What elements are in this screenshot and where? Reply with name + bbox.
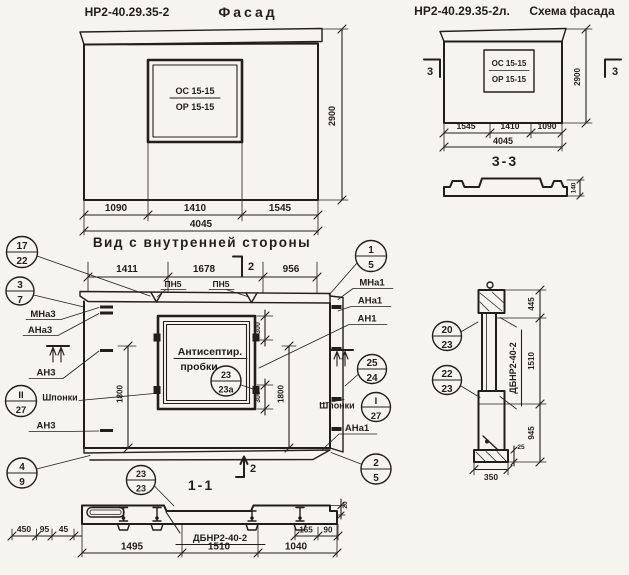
label-shponki-left: Шпонки: [42, 393, 77, 403]
callout-20-23: 20 23: [433, 322, 479, 352]
callout-II-27: II 27: [6, 386, 155, 417]
pn5-label-right: ПН5: [213, 279, 230, 289]
dim-25: 25: [517, 444, 525, 451]
d25-line: [511, 446, 517, 466]
inner-top-flange: [80, 292, 330, 304]
callout-top: 3: [17, 280, 23, 291]
dim-1040: 1040: [285, 542, 308, 553]
pn5-label-left: ПН5: [165, 279, 182, 289]
section2-mark-top-label: 2: [248, 261, 254, 273]
label-ana1-b: АНа1: [345, 423, 370, 434]
facade-window-frame: [148, 60, 242, 142]
schema-window-mark-top: ОС 15-15: [492, 59, 527, 68]
inner-dim-956: 956: [283, 264, 300, 275]
callout-bottom: 5: [368, 260, 374, 271]
right-key: [332, 305, 342, 309]
callout-top: 17: [16, 241, 28, 252]
dim-20: 20: [342, 501, 349, 509]
dim-450: 450: [17, 524, 31, 534]
callout-leader: [34, 295, 85, 307]
callout-bottom: 27: [371, 411, 382, 422]
callout-22-23: 22 23: [433, 366, 481, 398]
schema-height-dim: 2900: [573, 68, 582, 86]
callout-top: II: [18, 390, 23, 401]
section-11-label: 1-1: [188, 477, 214, 493]
left-key: [100, 429, 113, 432]
ana1-leader: [338, 307, 391, 312]
dim-300-bottom: 300: [255, 391, 262, 403]
left-key: [100, 312, 113, 315]
anchor-dot: [250, 516, 254, 520]
schema-title-word: Схема фасада: [529, 4, 615, 18]
section2-mark-bottom-label: 2: [250, 463, 256, 475]
label-ana3: АНа3: [28, 325, 52, 336]
window-tab: [154, 334, 161, 342]
schema-dim-1090: 1090: [538, 121, 557, 131]
facade-dim-total: 4045: [190, 219, 213, 230]
window-note-line2: пробки: [180, 361, 217, 373]
label-mna1: МНа1: [359, 278, 385, 289]
window-tab: [154, 386, 161, 394]
facade-window-mark-top: ОС 15-15: [175, 86, 214, 96]
callout-leader: [37, 256, 150, 296]
schema-dim-total: 4045: [493, 136, 513, 146]
anchor-dot: [298, 516, 302, 520]
callout-leader: [331, 453, 361, 465]
callout-bottom: 23а: [218, 385, 234, 395]
window-note-line1: Антисептир.: [178, 346, 243, 358]
callout-top: 2: [373, 458, 379, 469]
dim-1800-right: 1800: [277, 385, 286, 403]
facade-dim-1410: 1410: [184, 203, 207, 214]
callout-top: 20: [441, 325, 453, 336]
callout-bottom: 22: [16, 256, 28, 267]
callout-bottom: 23: [136, 484, 146, 494]
strut-dot: [485, 440, 489, 444]
dim-1510-v: 1510: [527, 352, 536, 370]
label-an3-bottom: АН3: [36, 421, 55, 432]
dim-165: 165: [299, 526, 313, 535]
facade-dim-1545: 1545: [269, 203, 292, 214]
label-shponki-right: Шпонки: [319, 401, 354, 411]
section1-mark-right-arrows: [334, 352, 348, 367]
label-an3-top: АН3: [36, 368, 55, 379]
mid-plank: [482, 313, 496, 391]
section-33-depth-dim: 140: [571, 182, 578, 193]
dim-445: 445: [527, 297, 536, 311]
callout-bottom: 23: [441, 384, 453, 395]
label-ana1: АНа1: [358, 296, 383, 307]
inner-dim-1411: 1411: [116, 264, 138, 275]
inner-body: [84, 302, 330, 449]
callout-3-7: 3 7: [6, 277, 84, 307]
schema-drawing: НР2-40.29.35-2л. Схема фасада ОС 15-15 О…: [414, 4, 621, 199]
callout-top: 22: [441, 369, 453, 380]
facade-body: [84, 44, 318, 201]
dim-1510: 1510: [208, 542, 231, 553]
callout-top: I: [375, 396, 378, 407]
inner-view-drawing: Вид с внутренней стороны 1411 1678 956 2…: [6, 235, 394, 506]
facade-drawing: НР2-40.29.35-2 Фасад ОС 15-15 ОР 15-15 2…: [80, 4, 348, 235]
drawing-canvas: НР2-40.29.35-2 Фасад ОС 15-15 ОР 15-15 2…: [0, 0, 629, 575]
dim-1800-left-line: [124, 342, 132, 452]
inner-dim-1678: 1678: [193, 264, 216, 275]
callout-top: 23: [136, 469, 146, 479]
facade-title-word: Фасад: [218, 4, 277, 20]
section3-mark-right-label: 3: [612, 66, 618, 78]
section1-mark-left-arrows: [50, 348, 64, 363]
facade-top-flange: [80, 29, 322, 45]
schema-window-frame: [484, 50, 534, 92]
section3-mark-left-label: 3: [427, 66, 433, 78]
inner-view-title: Вид с внутренней стороны: [93, 235, 311, 250]
section-11-drawing: 20 ДБНР2-40-2 450 95 45 165 90 1495 1510…: [8, 499, 349, 557]
callout-bottom: 7: [17, 295, 23, 306]
right-key: [332, 427, 342, 431]
dim-1800-right-line: [285, 342, 293, 452]
callout-2-5: 2 5: [331, 453, 391, 485]
schema-title-code: НР2-40.29.35-2л.: [414, 4, 510, 18]
callout-I-27: I 27: [362, 393, 391, 423]
section-22-drawing: ДБНР2-40-2 20 23 22 23 445 1510 945 25 3…: [433, 282, 547, 482]
callout-bottom: 27: [16, 405, 27, 416]
callout-25-24: 25 24: [345, 355, 387, 387]
dim-300-top: 300: [255, 322, 262, 334]
inner-bottom-flange: [84, 448, 330, 460]
facade-height-dim-line: [338, 25, 346, 204]
anchor-dot: [155, 516, 159, 520]
dim-45: 45: [59, 524, 69, 534]
schema-dim-1410: 1410: [501, 121, 520, 131]
drawing-sheet: НР2-40.29.35-2 Фасад ОС 15-15 ОР 15-15 2…: [0, 0, 629, 575]
callout-leader: [345, 375, 358, 387]
label-mna3: МНа3: [30, 309, 55, 320]
anchor-dot: [122, 516, 126, 520]
facade-title-code: НР2-40.29.35-2: [85, 5, 170, 19]
callout-leader: [461, 386, 480, 398]
dim-300-lines: [261, 310, 269, 415]
dim-1495: 1495: [121, 542, 144, 553]
section-33-profile: [444, 179, 567, 197]
callout-bottom: 5: [373, 473, 379, 484]
callout-23-23: 23 23: [127, 466, 175, 507]
schema-dim-1545: 1545: [457, 121, 476, 131]
dim-1800-left: 1800: [116, 385, 125, 403]
facade-height-dim: 2900: [327, 106, 337, 126]
section2-mark-top: [233, 257, 242, 277]
callout-bottom: 24: [366, 373, 378, 384]
callout-top: 23: [221, 370, 231, 380]
dim-350: 350: [484, 472, 498, 482]
dim-95: 95: [40, 524, 50, 534]
facade-window-mark-bottom: ОР 15-15: [176, 102, 215, 112]
callout-bottom: 9: [19, 477, 25, 488]
sec22-label: ДБНР2-40-2: [508, 342, 518, 393]
section-33-label: 3-3: [492, 153, 518, 169]
callout-leader: [154, 486, 174, 507]
callout-top: 1: [368, 245, 374, 256]
schema-height-dim-line: [582, 25, 590, 127]
callout-leader: [462, 322, 479, 332]
left-key: [100, 349, 113, 352]
callout-4-9: 4 9: [7, 456, 90, 489]
facade-dim-1090: 1090: [105, 203, 128, 214]
schema-top-flange: [440, 29, 566, 42]
bottom-block: [479, 391, 505, 450]
top-hook: [487, 282, 493, 288]
dim-90: 90: [324, 526, 333, 535]
callout-top: 4: [19, 462, 25, 473]
callout-leader: [329, 263, 357, 295]
facade-window-frame-inner: [153, 65, 237, 137]
sec22-dim-line: [536, 286, 544, 466]
dim-945: 945: [527, 426, 536, 440]
left-key: [100, 306, 113, 309]
callout-leader: [37, 456, 91, 470]
label-an1: АН1: [357, 314, 377, 325]
schema-window-mark-bottom: ОР 15-15: [492, 75, 527, 84]
callout-top: 25: [366, 358, 378, 369]
callout-bottom: 23: [441, 340, 453, 351]
